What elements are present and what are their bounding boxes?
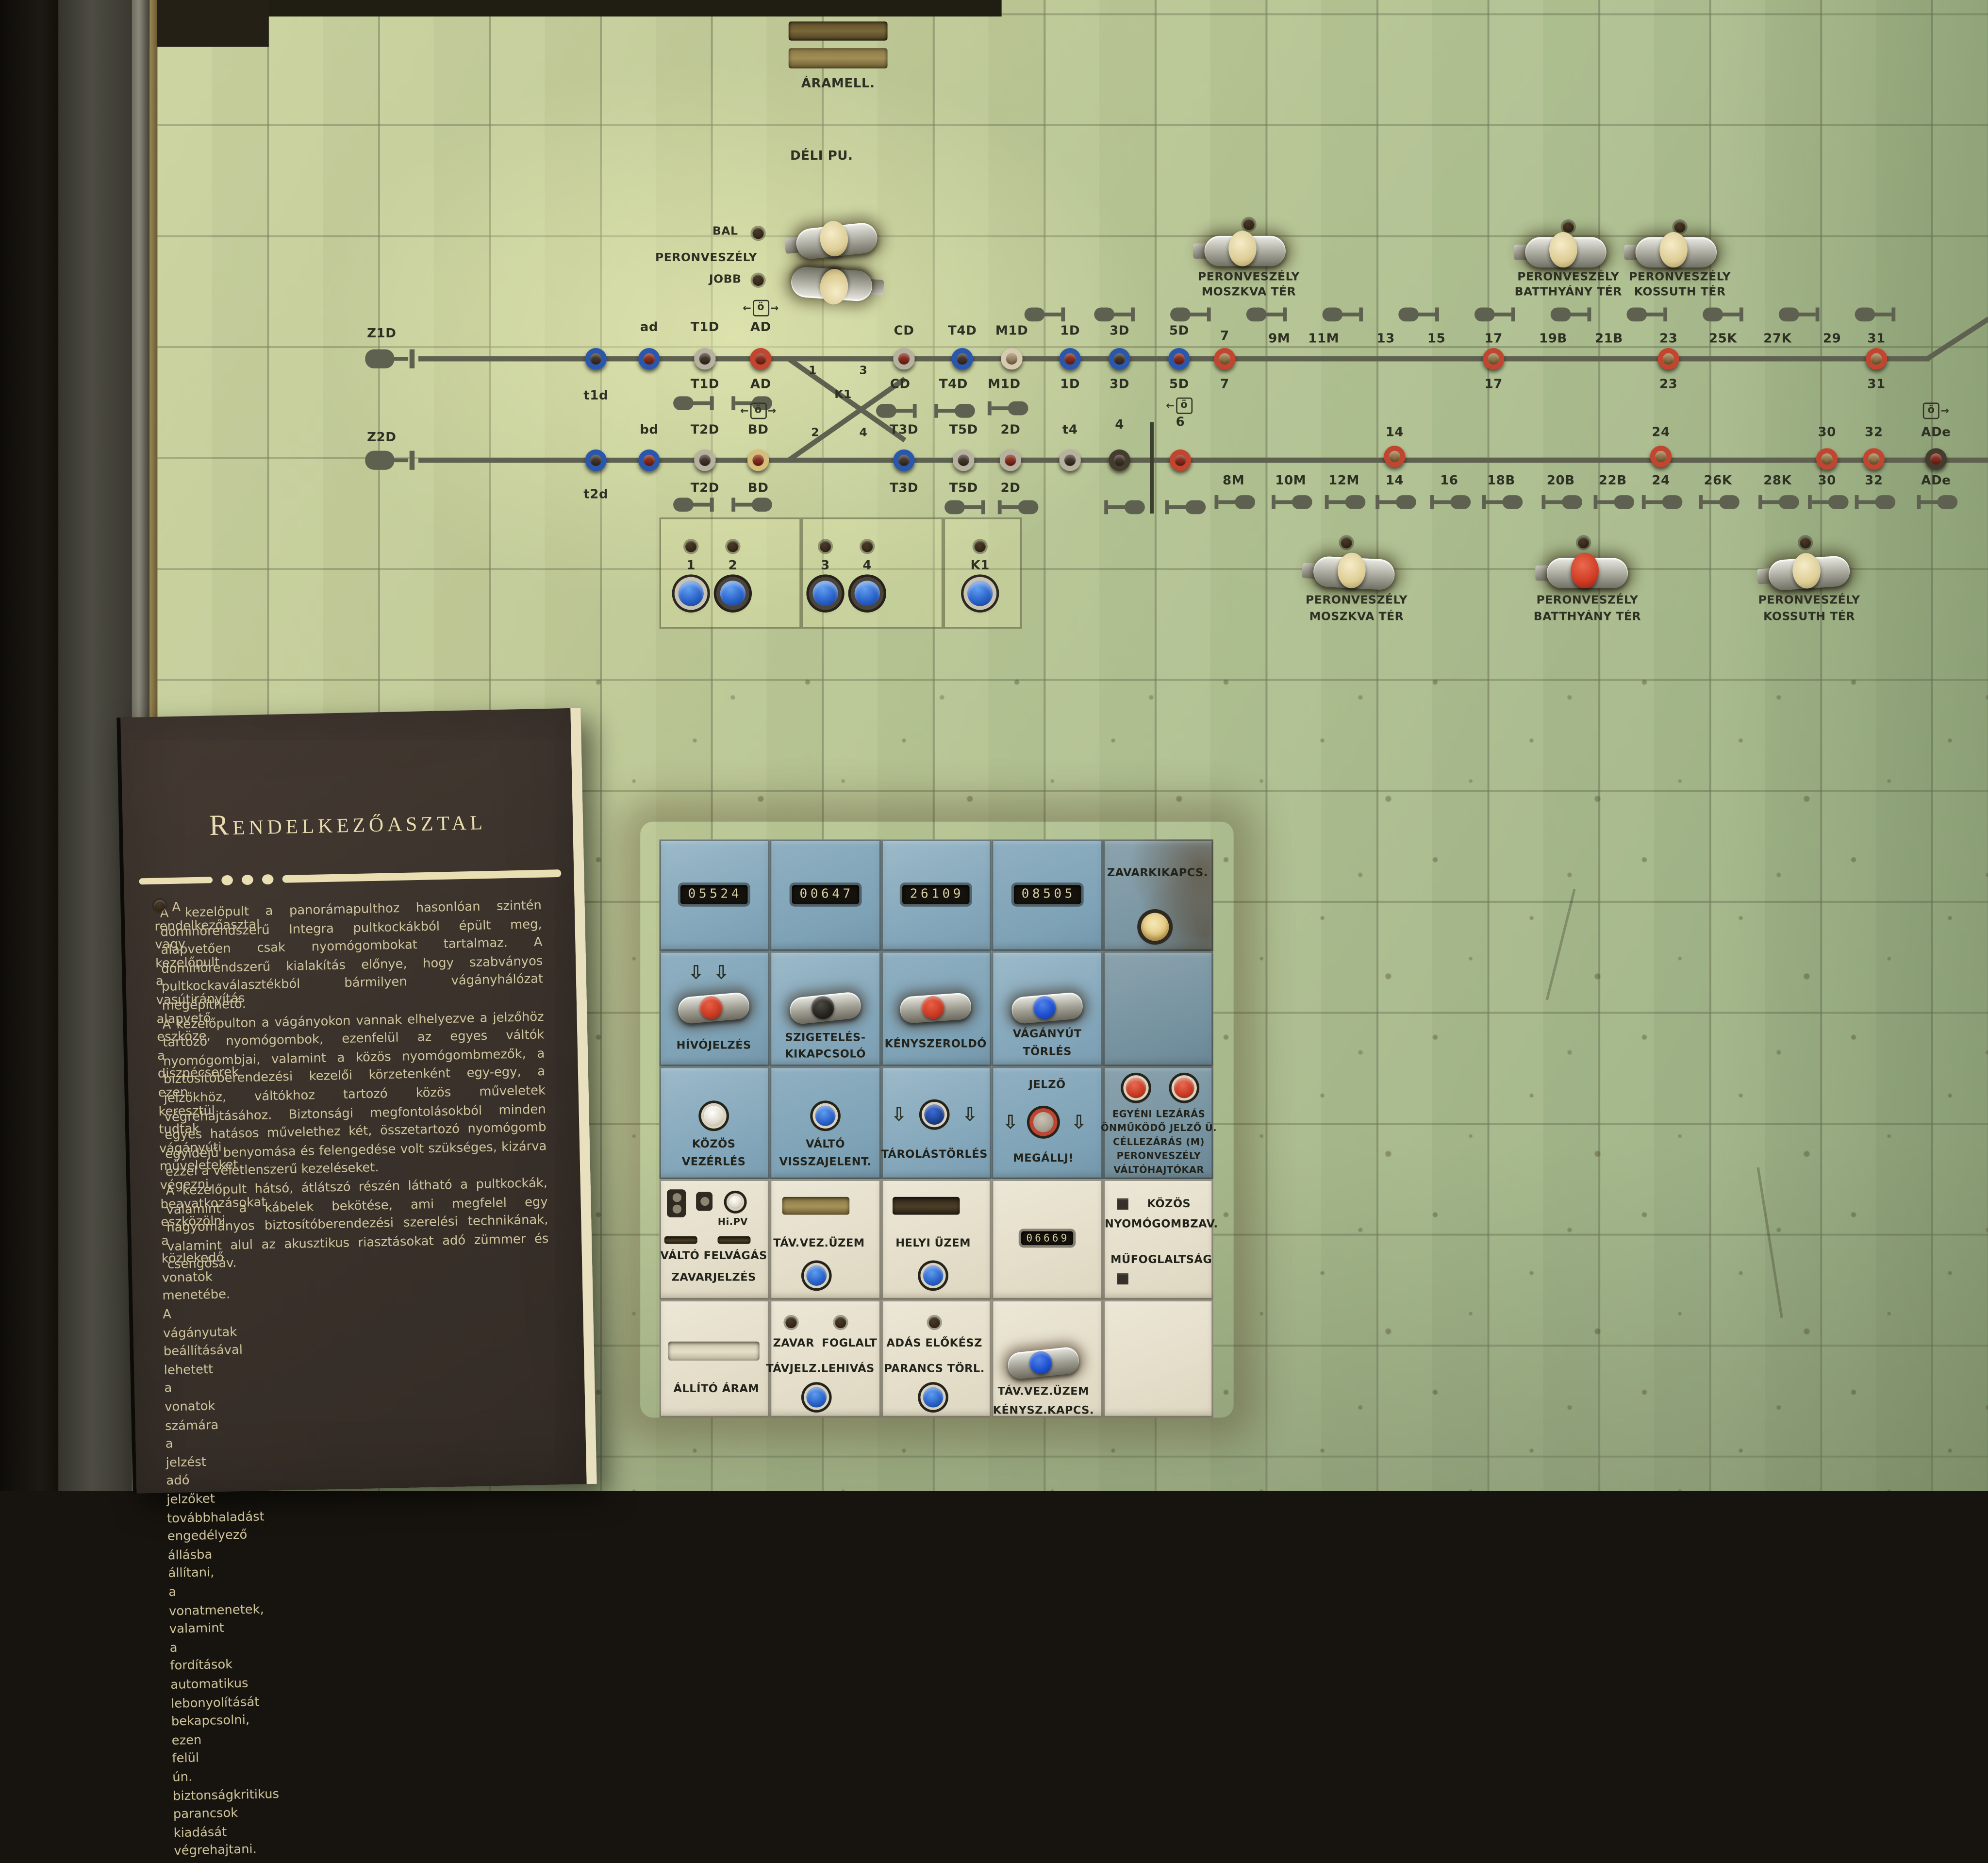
track-button-3D[interactable] <box>1109 348 1130 369</box>
signal-symbol <box>1094 307 1137 321</box>
peron-switch-jobb[interactable] <box>790 266 873 302</box>
peron-top-batthyany-line1: PERONVESZÉLY <box>1517 271 1619 284</box>
shunt-symbol: ←ö <box>1166 398 1192 414</box>
signal-symbol <box>1323 495 1366 509</box>
tvu-label-2: KÉNYSZ.KAPCS. <box>993 1405 1094 1417</box>
track-button-6[interactable] <box>1170 449 1191 471</box>
track-label: 10M <box>1275 474 1306 488</box>
signal-symbol <box>1474 307 1518 321</box>
track-button-T4D[interactable] <box>951 348 973 369</box>
down-arrow-icon: ⇩ <box>688 961 704 984</box>
junction-label-4: 4 <box>859 427 867 440</box>
foglalt-label: FOGLALT <box>822 1338 877 1350</box>
lever-knob <box>1549 232 1577 267</box>
track-label: 11M <box>1308 332 1339 346</box>
track-label: 8M <box>1223 474 1244 488</box>
group-button-label: 3 <box>821 559 830 573</box>
track-button-4[interactable] <box>1109 449 1130 471</box>
track-label: T5D <box>949 423 978 437</box>
track-label: 32 <box>1865 474 1883 488</box>
track-label: 7 <box>1220 378 1229 392</box>
lever-knob <box>1228 231 1256 266</box>
track-label: 20B <box>1547 474 1575 488</box>
indicator-lamp-bal <box>752 228 764 239</box>
adas-elokesz-label: ADÁS ELŐKÉSZ <box>886 1338 982 1350</box>
track-label: BD <box>748 482 769 496</box>
track-label: 9M <box>1268 332 1290 346</box>
track-label: 4 <box>1115 418 1124 432</box>
indicator-lamp <box>1563 221 1574 233</box>
tavjelz-button[interactable] <box>806 1387 827 1408</box>
junction-label-2: 2 <box>811 427 819 440</box>
track-button-bd[interactable] <box>638 449 660 471</box>
signal-symbol <box>985 401 1028 416</box>
placard-title: Rendelkezőasztal <box>122 802 573 844</box>
track-label: T1D <box>691 378 719 392</box>
track-button-CD[interactable] <box>893 348 914 369</box>
track-label: ad <box>640 321 658 335</box>
indicator-lamp <box>1578 537 1590 549</box>
indicator-lamp <box>1800 537 1811 549</box>
allito-aram-label: ÁLLÍTÓ ÁRAM <box>674 1383 760 1396</box>
indicator-lamp <box>727 541 739 552</box>
megallj-button[interactable] <box>1033 1112 1054 1132</box>
track-label: 24 <box>1652 426 1670 440</box>
tvu-label-1: TÁV.VEZ.ÜZEM <box>998 1386 1089 1398</box>
track-button-AD[interactable] <box>750 348 771 369</box>
hivojelzes-label: HÍVÓJELZÉS <box>677 1040 751 1052</box>
panel-corner <box>149 0 269 47</box>
shunt-symbol: ←ö→ <box>743 300 779 316</box>
group-button-2[interactable] <box>720 581 745 606</box>
track-label: 14 <box>1386 474 1404 488</box>
signal-symbol <box>1323 307 1366 321</box>
track-label: 29 <box>1823 332 1841 346</box>
signal-symbol <box>1591 495 1634 509</box>
valto-visszajelent-button[interactable] <box>815 1106 836 1126</box>
peron-top-moszkva-line1: PERONVESZÉLY <box>1198 271 1300 284</box>
track-label: 30 <box>1818 426 1836 440</box>
signal-symbol <box>1626 307 1670 321</box>
signal-lamp-icon <box>696 1192 712 1211</box>
group-button-label: K1 <box>970 559 989 573</box>
signal-symbol <box>1479 495 1523 509</box>
indicator-lamp <box>835 1317 846 1329</box>
track-button-5D[interactable] <box>1168 348 1190 369</box>
section-divider <box>1150 422 1154 514</box>
lever-knob <box>1659 232 1687 267</box>
signal-symbol <box>1539 495 1582 509</box>
peron-mid-moszkva-line2: MOSZKVA TÉR <box>1309 611 1404 624</box>
tav-vez-uzem-button[interactable] <box>806 1265 827 1286</box>
track-label: M1D <box>995 325 1028 339</box>
track-label: 2D <box>1000 482 1020 496</box>
track-button-BD[interactable] <box>747 449 769 471</box>
lever-knob <box>1571 553 1599 588</box>
track-label: CD <box>894 325 914 339</box>
lever-kenyszeroldo[interactable] <box>899 992 972 1024</box>
megallj-label: MEGÁLLJ! <box>1013 1152 1074 1165</box>
track-label: 5D <box>1169 378 1189 392</box>
track-label: t2d <box>583 488 608 502</box>
vaganyut-label-1: VÁGÁNYÚT <box>1013 1028 1082 1041</box>
indicator-lamp-jobb <box>752 275 764 286</box>
peron-mid-kossuth-line1: PERONVESZÉLY <box>1758 595 1860 607</box>
signal-symbol <box>1373 495 1416 509</box>
valto-label-1: VÁLTÓ <box>806 1139 845 1151</box>
panel-right-shade <box>1711 0 1988 1491</box>
signal-symbol <box>1852 495 1895 509</box>
signal-symbol <box>1162 500 1206 515</box>
signal-symbol <box>1398 307 1441 321</box>
peron-mid-moszkva-line1: PERONVESZÉLY <box>1306 595 1408 607</box>
valto-label-2: VISSZAJELENT. <box>779 1156 872 1169</box>
indicator-square <box>1117 1198 1128 1210</box>
track-label: 2D <box>1000 423 1020 437</box>
track-label: CD <box>890 378 911 392</box>
junction-label-3: 3 <box>859 365 867 378</box>
signal-symbol <box>944 500 988 515</box>
label-slot <box>893 1197 960 1215</box>
signal-symbol <box>673 396 716 410</box>
brass-plate <box>789 48 888 68</box>
track-label: T2D <box>691 423 719 437</box>
peron-mid-batthyany-line2: BATTHYÁNY TÉR <box>1534 611 1641 624</box>
signal-lamp-icon <box>667 1189 686 1217</box>
counter-display-5: 06669 <box>1021 1231 1073 1245</box>
track-label: bd <box>640 423 658 437</box>
indicator-lamp <box>928 1317 940 1329</box>
egyeni-line-5: VÁLTÓHAJTÓKAR <box>1113 1164 1204 1176</box>
track-label: 28K <box>1763 474 1791 488</box>
blank-blue-tile <box>1103 951 1213 1066</box>
signal-symbol <box>673 498 716 512</box>
signal-symbol <box>1756 495 1799 509</box>
egyeni-line-3: CÉLLEZÁRÁS (M) <box>1113 1136 1205 1148</box>
track-label: T3D <box>890 482 918 496</box>
peron-switch-batthyany-mid[interactable] <box>1547 558 1628 588</box>
hipv-label: Hi.PV <box>718 1216 748 1228</box>
bal-label: BAL <box>712 226 738 238</box>
counter-display-2: 00647 <box>792 885 859 904</box>
track1-endcap <box>365 349 418 368</box>
track-label: 3D <box>1110 325 1129 339</box>
szigeteles-label-2: KIKAPCSOLÓ <box>785 1048 866 1061</box>
label-slot <box>782 1197 849 1215</box>
track-button-32[interactable] <box>1863 448 1885 469</box>
down-arrow-icon: ⇩ <box>713 961 729 984</box>
track-button-ADe[interactable] <box>1925 448 1947 469</box>
szigeteles-label-1: SZIGETELÉS- <box>785 1032 866 1045</box>
kozos-nyomo-label-1: KÖZÖS <box>1147 1198 1191 1211</box>
track-label: 13 <box>1376 332 1394 346</box>
track-label: 21B <box>1595 332 1623 346</box>
egyeni-red-button-1[interactable] <box>1126 1078 1146 1098</box>
track-label: 27K <box>1763 332 1791 346</box>
track-label: 24 <box>1652 474 1670 488</box>
shunt-symbol: ö→ <box>1923 402 1949 419</box>
track-label: T4D <box>948 325 977 339</box>
indicator-lamp <box>785 1317 797 1329</box>
track-button-T5D[interactable] <box>953 449 974 471</box>
mufoglaltsag-label: MŰFOGLALTSÁG <box>1110 1254 1212 1266</box>
group-button-3[interactable] <box>812 581 838 606</box>
track-label: 25K <box>1709 332 1737 346</box>
track-label: 18B <box>1487 474 1515 488</box>
signal-symbol <box>1427 495 1471 509</box>
parancs-torl-button[interactable] <box>923 1387 944 1408</box>
panel-top-edge <box>149 0 1001 17</box>
track-button-t1d[interactable] <box>585 348 607 369</box>
egyeni-line-1: EGYÉNI LEZÁRÁS <box>1112 1108 1205 1120</box>
track-button-23[interactable] <box>1657 348 1679 369</box>
indicator-square <box>1117 1273 1128 1285</box>
track-label: 23 <box>1659 332 1677 346</box>
peron-switch-batthyany-top[interactable] <box>1525 237 1606 267</box>
tavjelz-label: TÁVJELZ.LEHIVÁS <box>766 1363 875 1376</box>
track-label: 12M <box>1328 474 1359 488</box>
peron-switch-moszkva-top[interactable] <box>1205 236 1286 266</box>
track-label: T4D <box>939 378 968 392</box>
track-label: T5D <box>949 482 978 496</box>
group-button-label: 1 <box>686 559 696 573</box>
track-label: 16 <box>1440 474 1458 488</box>
valto-felvagas-label: VÁLTÓ FELVÁGÁS <box>660 1250 767 1263</box>
track-label: 22B <box>1599 474 1627 488</box>
track-label: 31 <box>1867 378 1885 392</box>
peron-switch-kossuth-top[interactable] <box>1636 237 1717 267</box>
signal-symbol <box>729 498 772 512</box>
signal-symbol <box>1696 495 1739 509</box>
track-label: T1D <box>691 321 719 335</box>
label-slot <box>664 1236 697 1244</box>
track-label: 1D <box>1060 325 1080 339</box>
info-placard: Rendelkezőasztal A rendelkezőasztal vagy… <box>116 708 596 1493</box>
down-arrow-icon: ⇩ <box>962 1103 978 1126</box>
track-button-T1D[interactable] <box>694 348 715 369</box>
track-button-1D[interactable] <box>1059 348 1080 369</box>
egyeni-line-2: ÖNMŰKÖDŐ JELZŐ Ü. <box>1101 1122 1217 1134</box>
track-button-30[interactable] <box>1816 448 1838 469</box>
track-label: t4 <box>1062 423 1078 437</box>
signal-symbol <box>1855 307 1898 321</box>
parancs-torl-label: PARANCS TÖRL. <box>884 1363 984 1376</box>
track-button-t2d[interactable] <box>585 449 607 471</box>
track-label: T3D <box>890 423 918 437</box>
track-label: T2D <box>691 482 719 496</box>
signal-symbol <box>1269 495 1312 509</box>
track-label: 30 <box>1818 474 1836 488</box>
down-arrow-icon: ⇩ <box>1002 1111 1018 1133</box>
track-label: 31 <box>1867 332 1885 346</box>
panel-left-trim <box>149 0 157 723</box>
indicator-lamp <box>861 541 873 552</box>
track-label: t1d <box>583 389 608 403</box>
track-label: 26K <box>1704 474 1732 488</box>
track-button-M1D[interactable] <box>1001 348 1022 369</box>
signal-symbol <box>1779 307 1822 321</box>
indicator-lamp <box>1674 221 1686 233</box>
track-button-T3D[interactable] <box>893 449 914 471</box>
track-label: M1D <box>988 378 1020 392</box>
peron-top-batthyany-line2: BATTHYÁNY TÉR <box>1515 286 1622 299</box>
track-label: ADe <box>1921 474 1951 488</box>
tav-vez-uzem-label: TÁV.VEZ.ÜZEM <box>773 1238 864 1250</box>
track-label: 3D <box>1110 378 1129 392</box>
track2-endcap <box>365 451 418 470</box>
peron-top-kossuth-line2: KOSSUTH TÉR <box>1634 286 1726 299</box>
indicator-lamp <box>685 541 697 552</box>
track-button-31[interactable] <box>1866 348 1887 369</box>
peron-mid-kossuth-line2: KOSSUTH TÉR <box>1763 611 1855 624</box>
signal-symbol <box>876 404 919 418</box>
track-button-17[interactable] <box>1483 348 1504 369</box>
blank-white-tile <box>1103 1300 1213 1418</box>
track-label: BD <box>748 423 769 437</box>
counter-display-1: 05524 <box>680 885 747 904</box>
group-button-label: 2 <box>728 559 737 573</box>
label-slot <box>668 1342 760 1361</box>
signal-symbol <box>1246 307 1290 321</box>
down-arrow-icon: ⇩ <box>1071 1111 1087 1133</box>
zavarkikapcs-button[interactable] <box>1141 913 1169 941</box>
placard-body: A rendelkezőasztal vagy kezelőpult a vas… <box>160 898 549 1276</box>
deli-pu-label: DÉLI PU. <box>790 150 853 164</box>
egyeni-red-button-2[interactable] <box>1174 1078 1194 1098</box>
signal-symbol <box>1551 307 1594 321</box>
kozos-label-1: KÖZÖS <box>692 1139 736 1151</box>
signal-symbol <box>995 500 1039 515</box>
indicator-lamp <box>974 541 986 552</box>
track1-start-label: Z1D <box>367 327 396 341</box>
peron-top-moszkva-line2: MOSZKVA TÉR <box>1202 286 1296 299</box>
helyi-uzem-button[interactable] <box>923 1265 944 1286</box>
kozos-vezerles-button[interactable] <box>704 1106 724 1126</box>
zavar-label: ZAVAR <box>773 1338 814 1350</box>
peron-switch-moszkva-mid[interactable] <box>1313 556 1395 590</box>
track-label: 17 <box>1484 378 1502 392</box>
track-label: 1D <box>1060 378 1080 392</box>
helyi-uzem-label: HELYI ÜZEM <box>895 1238 971 1250</box>
track-button-2D[interactable] <box>1000 449 1021 471</box>
jelzo-label: JELZŐ <box>1029 1079 1066 1092</box>
jobb-label: JOBB <box>709 274 742 286</box>
group-button-4[interactable] <box>855 581 880 606</box>
track-label: 5D <box>1169 325 1189 339</box>
zavarjelzes-label: ZAVARJELZÉS <box>672 1272 756 1284</box>
junction-label-k1: K1 <box>834 389 852 402</box>
signal-symbol <box>1640 495 1683 509</box>
track-button-t4[interactable] <box>1059 449 1080 471</box>
hipv-lamp <box>729 1196 742 1208</box>
signal-symbol <box>1025 307 1068 321</box>
indicator-lamp <box>1243 219 1255 231</box>
egyeni-line-4: PERONVESZÉLY <box>1117 1150 1201 1162</box>
signal-symbol <box>932 404 975 418</box>
track-label: 15 <box>1427 332 1445 346</box>
tarolastorles-button[interactable] <box>924 1104 944 1125</box>
zavarkikapcs-label: ZAVARKIKAPCS. <box>1107 867 1208 880</box>
door-frame-dark <box>0 0 58 1491</box>
aramell-label: ÁRAMELL. <box>801 77 875 91</box>
signal-symbol <box>1703 307 1746 321</box>
indicator-lamp <box>1341 537 1352 549</box>
track-label: AD <box>750 378 771 392</box>
indicator-lamp <box>820 541 831 552</box>
placard-divider <box>139 868 561 886</box>
track-button-T2D[interactable] <box>694 449 715 471</box>
track-button-24[interactable] <box>1650 446 1672 467</box>
group-button-label: 4 <box>862 559 872 573</box>
kozos-label-2: VEZÉRLÉS <box>682 1156 746 1169</box>
junction-label-1: 1 <box>809 365 817 378</box>
peronveszely-label: PERONVESZÉLY <box>655 252 757 265</box>
counter-display-4: 08505 <box>1014 885 1080 904</box>
peron-switch-kossuth-mid[interactable] <box>1768 555 1851 591</box>
placard-paragraph-3: A kezelőpulton a vágányokon vannak elhel… <box>162 1009 547 1183</box>
kenyszeroldo-label: KÉNYSZEROLDÓ <box>885 1038 987 1051</box>
peron-mid-batthyany-line1: PERONVESZÉLY <box>1536 595 1638 607</box>
track2-start-label: Z2D <box>367 431 396 445</box>
track-button-7[interactable] <box>1214 348 1235 369</box>
label-slot <box>718 1236 751 1244</box>
signal-symbol <box>1212 495 1255 509</box>
track-label: ADe <box>1921 426 1951 440</box>
track-label: 7 <box>1220 330 1229 344</box>
signal-symbol <box>1102 500 1145 515</box>
shunt-symbol: ←ö→ <box>740 402 776 419</box>
signal-symbol <box>1806 495 1849 509</box>
track-label: 17 <box>1484 332 1502 346</box>
kozos-nyomo-label-2: NYOMÓGOMBZAV. <box>1105 1218 1218 1231</box>
peron-top-kossuth-line1: PERONVESZÉLY <box>1629 271 1731 284</box>
track-label: 19B <box>1539 332 1567 346</box>
engraved-name-plate <box>789 21 888 40</box>
tarolastorles-label: TÁROLÁSTÖRLÉS <box>881 1149 987 1162</box>
track-label: AD <box>750 321 771 335</box>
track-label: 32 <box>1865 426 1883 440</box>
track-label: 6 <box>1176 416 1185 430</box>
vaganyut-label-2: TÖRLÉS <box>1023 1046 1072 1059</box>
signal-symbol <box>1914 495 1957 509</box>
control-panel-photo: ÁRAMELL. DÉLI PU. BAL PERONVESZÉLY JOBB … <box>0 0 1988 1491</box>
counter-display-3: 26109 <box>902 885 969 904</box>
group-button-1[interactable] <box>679 581 704 606</box>
track-button-14[interactable] <box>1384 446 1405 467</box>
track-label: 23 <box>1659 378 1677 392</box>
signal-symbol <box>1170 307 1213 321</box>
down-arrow-icon: ⇩ <box>891 1103 907 1126</box>
track-button-ad[interactable] <box>638 348 660 369</box>
group-button-k1[interactable] <box>967 581 993 606</box>
track-label: 14 <box>1386 426 1404 440</box>
